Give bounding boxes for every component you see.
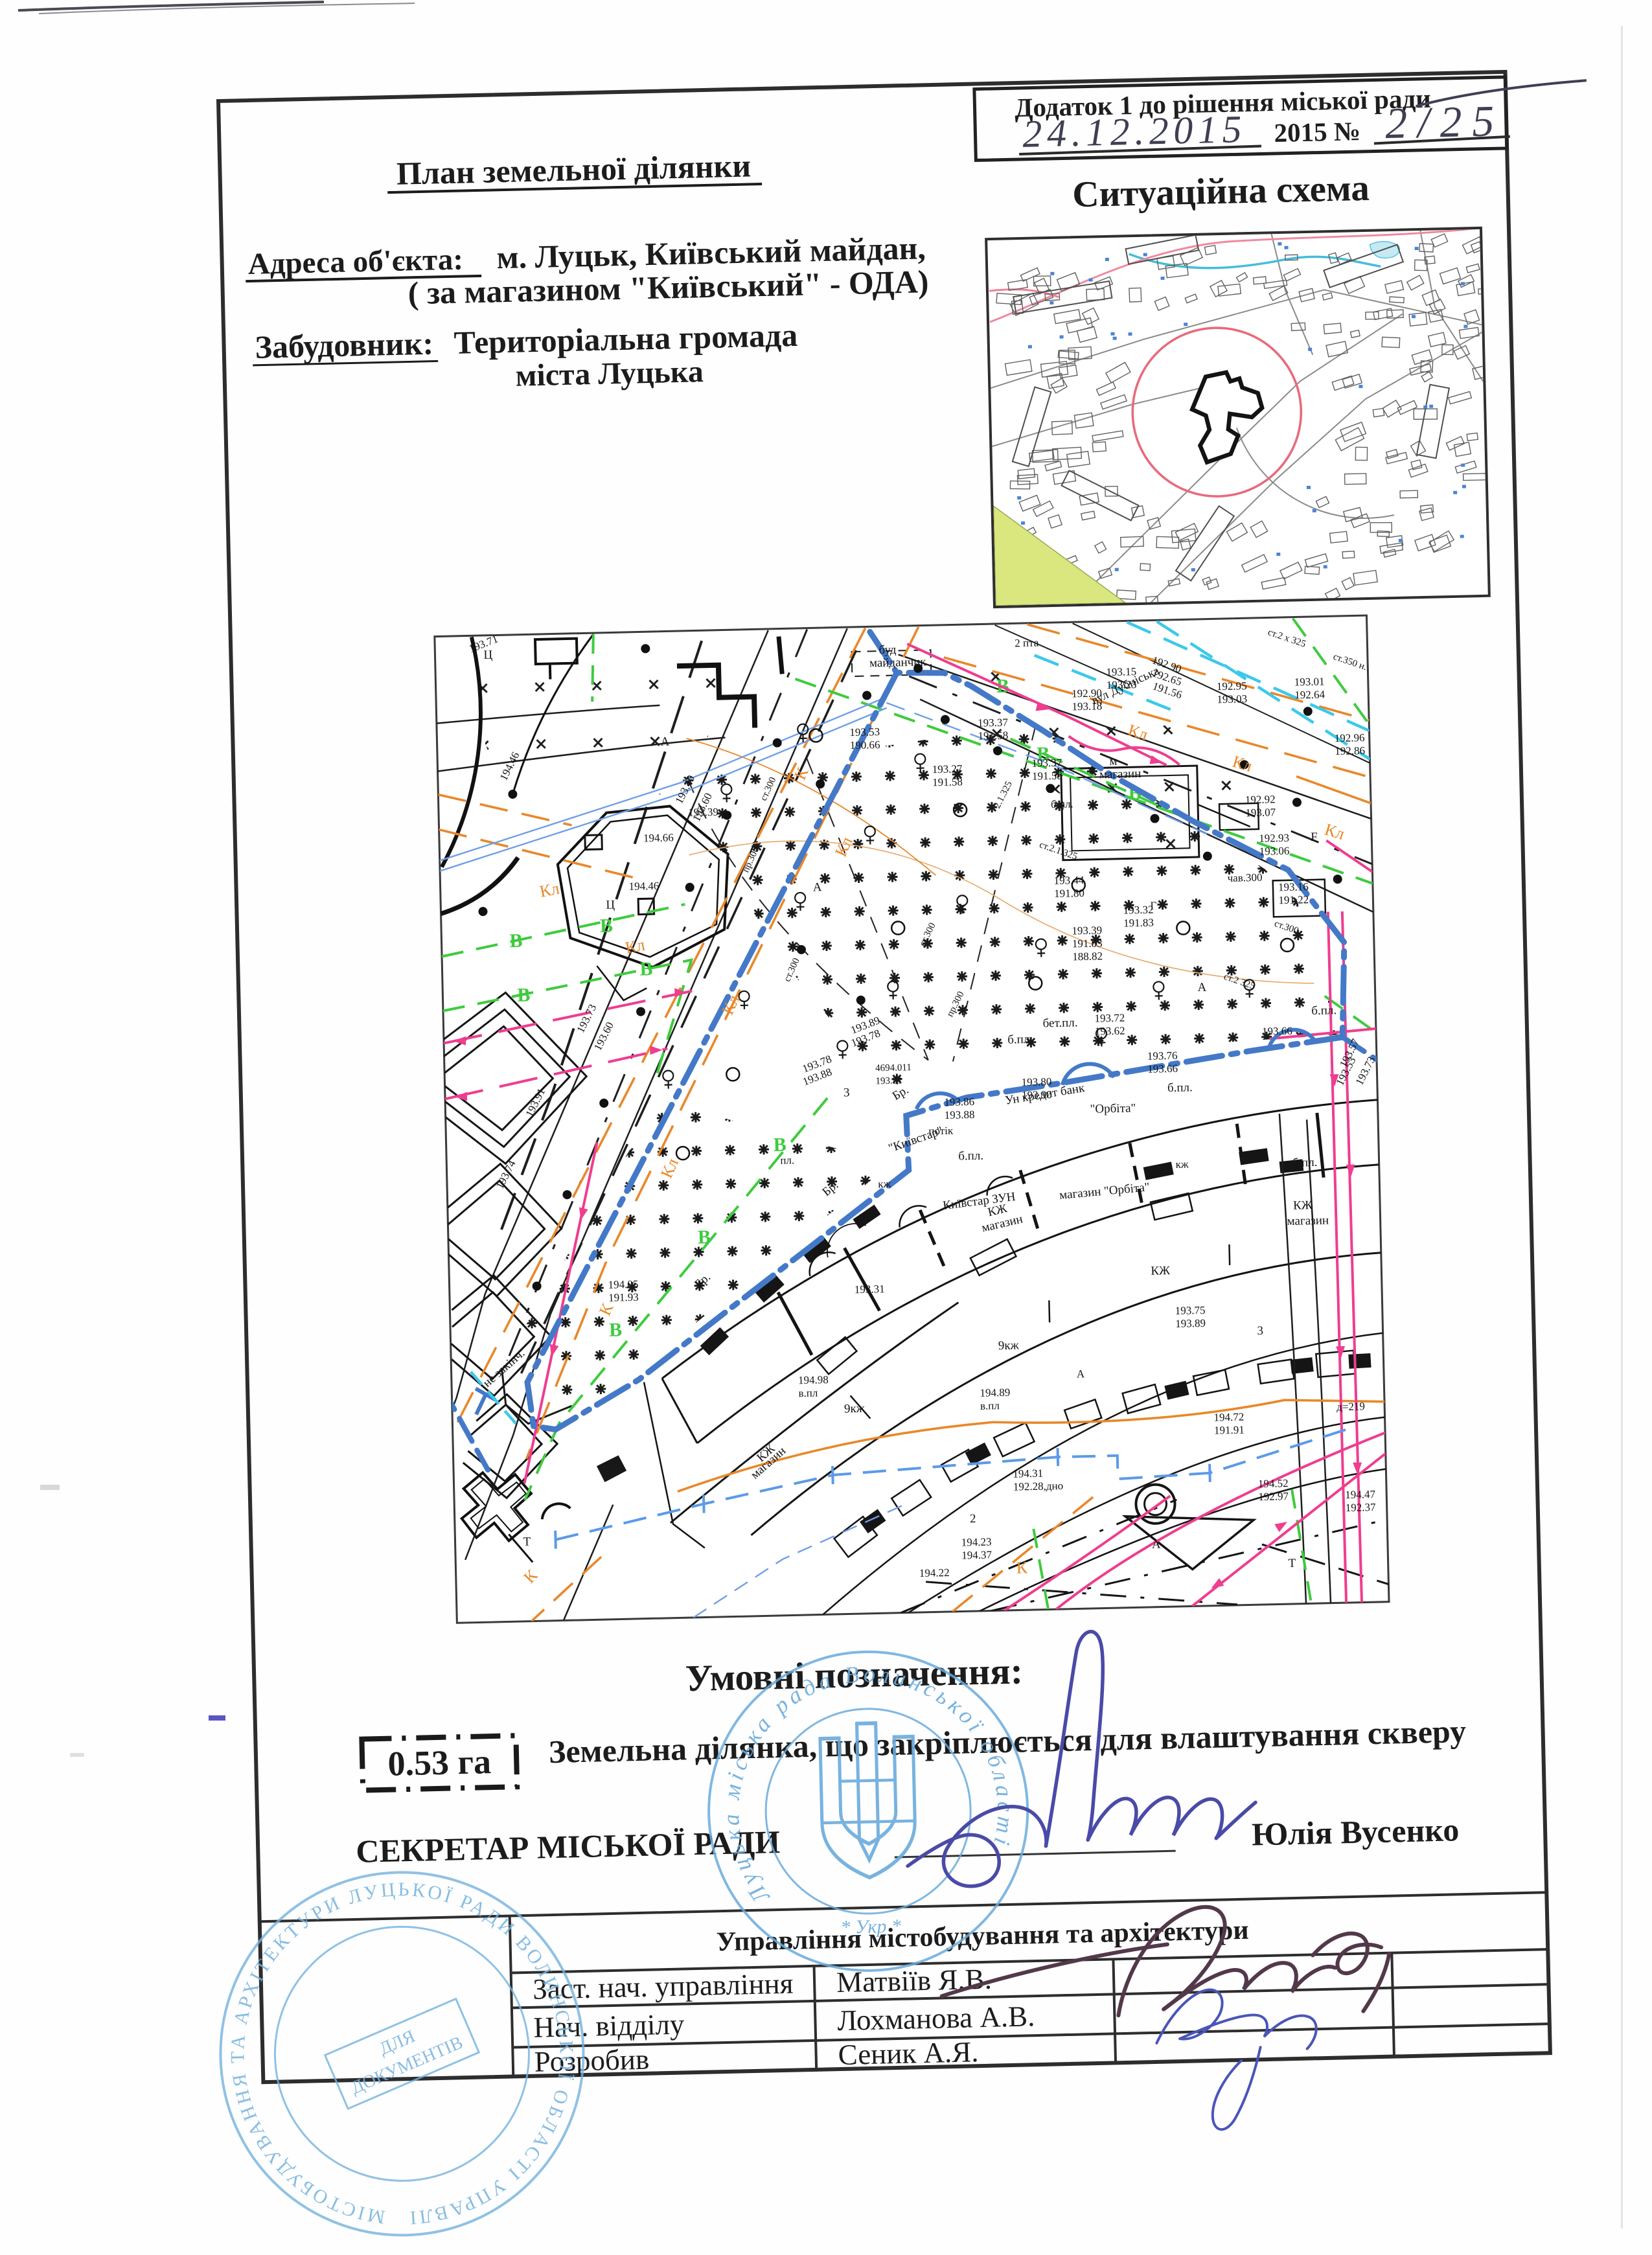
svg-text:В: В	[517, 984, 531, 1005]
svg-text:чав.300: чав.300	[1227, 871, 1262, 884]
svg-text:194.72: 194.72	[1213, 1411, 1244, 1424]
svg-text:193.91: 193.91	[875, 1075, 902, 1086]
svg-text:193.37: 193.37	[978, 716, 1009, 729]
svg-text:Ситуаційна схема: Ситуаційна схема	[1072, 168, 1370, 215]
svg-text:194.89: 194.89	[980, 1386, 1010, 1399]
svg-text:* Укр *: * Укр *	[840, 1916, 901, 1938]
svg-text:193.53: 193.53	[849, 726, 880, 738]
svg-text:Матвіїв Я.В.: Матвіїв Я.В.	[836, 1963, 992, 1998]
svg-text:КЖ: КЖ	[1293, 1198, 1313, 1213]
svg-text:буд: буд	[878, 643, 897, 657]
svg-text:193.66: 193.66	[1262, 1025, 1292, 1038]
svg-text:192.92: 192.92	[1245, 793, 1276, 806]
svg-text:міста Луцька: міста Луцька	[515, 354, 704, 393]
svg-text:В: В	[698, 1226, 711, 1248]
svg-text:193.66: 193.66	[1147, 1062, 1178, 1075]
svg-text:Т: Т	[523, 1535, 531, 1549]
svg-text:191.93: 191.93	[608, 1291, 639, 1304]
svg-text:магазин: магазин	[1287, 1214, 1329, 1228]
svg-text:0.53 га: 0.53 га	[387, 1742, 492, 1783]
svg-text:193.75: 193.75	[1175, 1304, 1206, 1317]
svg-text:191.83: 191.83	[1072, 937, 1103, 950]
svg-text:б.пл.: б.пл.	[1051, 797, 1073, 810]
svg-text:191.58: 191.58	[978, 729, 1008, 742]
svg-text:А: А	[1152, 1538, 1161, 1551]
svg-text:Кл: Кл	[538, 879, 561, 901]
svg-text:193.16: 193.16	[1278, 880, 1309, 893]
svg-text:КЖ: КЖ	[1151, 1264, 1171, 1278]
svg-text:192.97: 192.97	[1258, 1490, 1289, 1503]
svg-text:192.86: 192.86	[1335, 744, 1365, 757]
svg-text:Т: Т	[1288, 1557, 1296, 1570]
svg-text:193.27: 193.27	[932, 762, 963, 775]
svg-text:пл.: пл.	[780, 1154, 794, 1166]
svg-text:194.31: 194.31	[1013, 1467, 1043, 1480]
svg-text:"Орбіта": "Орбіта"	[1090, 1101, 1136, 1116]
svg-text:194.47: 194.47	[1345, 1488, 1376, 1501]
svg-text:В: В	[609, 1319, 623, 1340]
svg-text:Г: Г	[1150, 899, 1156, 911]
svg-text:А: А	[660, 735, 669, 748]
svg-text:194.23: 194.23	[961, 1535, 992, 1548]
svg-text:2 пта: 2 пта	[1015, 636, 1039, 649]
svg-text:кж: кж	[1175, 1158, 1189, 1170]
svg-text:193.72: 193.72	[1094, 1012, 1125, 1025]
svg-text:194.46: 194.46	[628, 880, 659, 893]
svg-text:191.58: 191.58	[932, 775, 963, 788]
svg-text:Забудовник:: Забудовник:	[255, 325, 434, 365]
svg-text:В: В	[639, 958, 653, 979]
svg-text:в.пл: в.пл	[980, 1399, 1000, 1412]
svg-text:9кж: 9кж	[998, 1338, 1020, 1353]
svg-text:190.66: 190.66	[850, 738, 880, 751]
svg-text:194.22: 194.22	[919, 1566, 950, 1579]
svg-text:бет.пл.: бет.пл.	[1042, 1016, 1077, 1030]
svg-text:В: В	[509, 930, 523, 952]
svg-text:192.95: 192.95	[1217, 680, 1247, 693]
svg-text:194.98: 194.98	[798, 1373, 829, 1386]
svg-text:193.76: 193.76	[1147, 1049, 1178, 1062]
svg-text:193.88: 193.88	[945, 1108, 975, 1121]
svg-text:193.03: 193.03	[1217, 693, 1247, 705]
svg-text:Розробив: Розробив	[534, 2043, 650, 2078]
svg-text:191.80: 191.80	[1054, 887, 1084, 900]
svg-text:Лохманова А.В.: Лохманова А.В.	[837, 2000, 1035, 2037]
svg-text:м: м	[1109, 755, 1118, 768]
svg-text:191.91: 191.91	[1214, 1424, 1245, 1437]
svg-text:193.31: 193.31	[855, 1283, 885, 1296]
svg-text:193.01: 193.01	[1294, 675, 1325, 688]
svg-text:194.66: 194.66	[643, 831, 674, 844]
svg-text:192.96: 192.96	[1335, 731, 1365, 744]
svg-text:192.37: 192.37	[1345, 1501, 1376, 1514]
svg-text:193.44: 193.44	[1053, 874, 1084, 887]
svg-text:б.пл.: б.пл.	[1292, 1156, 1317, 1170]
svg-text:193.06: 193.06	[1259, 845, 1289, 858]
svg-text:2: 2	[970, 1512, 976, 1526]
svg-text:2015 №: 2015 №	[1274, 116, 1360, 148]
svg-text:А: А	[1077, 1368, 1085, 1380]
svg-text:188.82: 188.82	[1072, 950, 1103, 963]
svg-text:В: В	[600, 915, 614, 937]
svg-text:193.62: 193.62	[1095, 1025, 1125, 1038]
svg-text:193.07: 193.07	[1245, 806, 1276, 819]
svg-text:194.37: 194.37	[961, 1548, 992, 1561]
svg-text:А: А	[1197, 981, 1206, 994]
svg-text:магазин: магазин	[1099, 767, 1141, 781]
svg-text:192.28,дно: 192.28,дно	[1013, 1480, 1064, 1493]
svg-text:К: К	[1016, 1558, 1028, 1577]
svg-text:9кж: 9кж	[844, 1402, 866, 1416]
svg-text:А: А	[813, 880, 822, 894]
svg-text:192.93: 192.93	[1259, 832, 1289, 845]
svg-text:кж: кж	[878, 1178, 891, 1190]
svg-text:Кл: Кл	[624, 935, 647, 957]
svg-text:193.86: 193.86	[944, 1095, 974, 1108]
svg-text:Ц: Ц	[483, 648, 492, 662]
svg-text:б.пл.: б.пл.	[958, 1149, 983, 1163]
svg-text:193.39: 193.39	[688, 806, 718, 819]
svg-text:Сеник А.Я.: Сеник А.Я.	[838, 2035, 979, 2071]
svg-text:Юлія Вусенко: Юлія Вусенко	[1251, 1811, 1459, 1852]
svg-text:в.пл: в.пл	[798, 1387, 818, 1400]
svg-text:В: В	[773, 1134, 786, 1156]
svg-text:F: F	[1311, 830, 1318, 844]
svg-text:3: 3	[1257, 1324, 1263, 1338]
svg-text:194.52: 194.52	[1258, 1477, 1289, 1490]
svg-text:4694.011: 4694.011	[875, 1062, 912, 1073]
svg-text:б.пл.: б.пл.	[1311, 1003, 1337, 1018]
svg-text:б.пл.: б.пл.	[1007, 1033, 1033, 1047]
svg-text:Ц: Ц	[606, 898, 615, 911]
svg-text:193.89: 193.89	[1175, 1317, 1206, 1330]
svg-text:193.37: 193.37	[1031, 757, 1062, 770]
svg-text:194.05: 194.05	[608, 1278, 638, 1291]
svg-text:191.58: 191.58	[1032, 770, 1062, 783]
svg-text:б.пл.: б.пл.	[1167, 1081, 1193, 1095]
svg-text:191.83: 191.83	[1123, 917, 1154, 930]
svg-text:193.39: 193.39	[1072, 924, 1102, 937]
svg-text:191.22: 191.22	[1278, 893, 1309, 906]
svg-text:майданчик: майданчик	[869, 655, 927, 670]
svg-text:192.64: 192.64	[1294, 688, 1325, 701]
svg-text:3: 3	[843, 1086, 850, 1099]
svg-text:193.32: 193.32	[1123, 904, 1153, 917]
svg-text:д=219: д=219	[1337, 1400, 1365, 1413]
